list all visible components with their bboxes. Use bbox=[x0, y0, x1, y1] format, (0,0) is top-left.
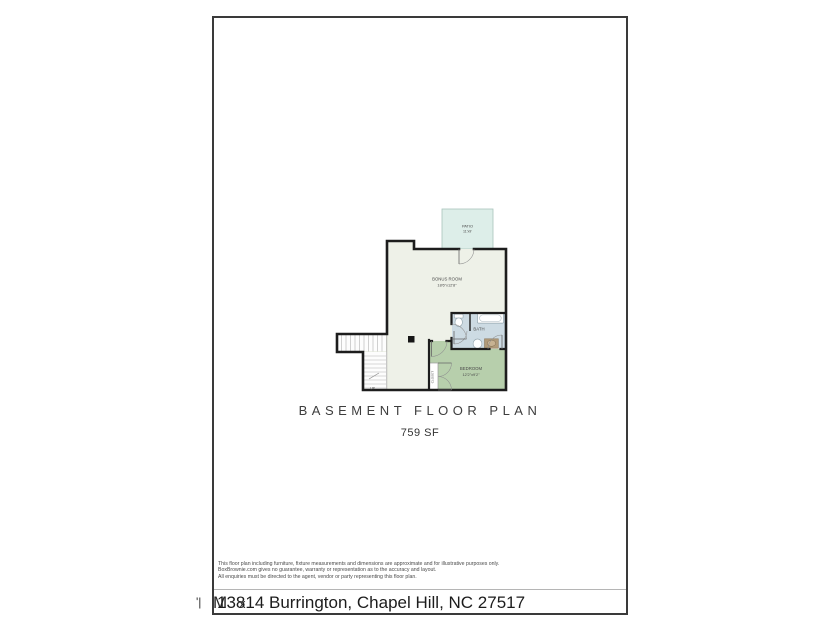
floor-plan-page: PATIO 11'x9' BONUS ROOM 18'6"x12'8" BATH… bbox=[212, 16, 628, 615]
room-label-bonus: BONUS ROOM bbox=[432, 277, 462, 282]
stairs-up-label: UP bbox=[370, 387, 375, 391]
sink-fixture bbox=[473, 339, 498, 349]
support-column bbox=[408, 336, 415, 343]
footer-address-bar: M 13814 Burrington, Chapel Hill, NC 2751… bbox=[214, 592, 626, 613]
square-footage-label: 759 SF bbox=[214, 427, 626, 439]
room-dims-bonus: 18'6"x12'8" bbox=[437, 283, 457, 288]
disclaimer-line: All enquiries must be directed to the ag… bbox=[218, 574, 608, 580]
room-dims-bedroom: 12'2"x9'2" bbox=[462, 372, 480, 377]
floor-plan-drawing: PATIO 11'x9' BONUS ROOM 18'6"x12'8" BATH… bbox=[330, 205, 510, 395]
margin-artifact: '| bbox=[196, 595, 201, 609]
room-label-closet: CLOSET bbox=[431, 371, 435, 383]
footer-divider bbox=[214, 589, 626, 590]
bathtub-fixture bbox=[478, 313, 504, 323]
address-overlay-artifact: x bbox=[239, 596, 246, 611]
screenshot-stage: PATIO 11'x9' BONUS ROOM 18'6"x12'8" BATH… bbox=[0, 0, 840, 630]
stair-upper-run bbox=[338, 335, 386, 351]
room-dims-patio: 11'x9' bbox=[463, 230, 472, 234]
property-address: 13814 Burrington, Chapel Hill, NC 27517 bbox=[217, 593, 525, 613]
room-label-patio: PATIO bbox=[462, 224, 473, 229]
disclaimer-block: This floor plan including furniture, fix… bbox=[218, 561, 608, 580]
room-label-bath: BATH bbox=[473, 327, 484, 332]
room-label-bedroom: BEDROOM bbox=[460, 366, 483, 371]
page-title: BASEMENT FLOOR PLAN bbox=[214, 403, 626, 418]
